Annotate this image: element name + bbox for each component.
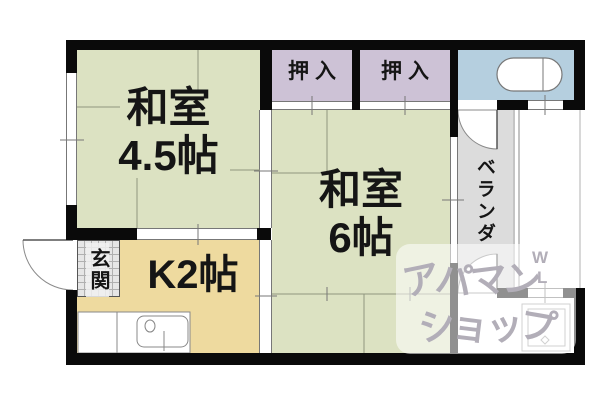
label-washitsu-6-line1: 和室 [272,166,450,214]
label-entrance: 玄関 [86,243,109,297]
label-closet-1: 押入 [272,60,352,84]
label-washitsu-4-5-line1: 和室 [77,84,260,132]
bathtub-icon [497,58,562,91]
label-washitsu-4-5-line2: 4.5帖 [77,132,260,180]
washer-pan-icon [522,304,570,351]
label-closet-2: 押入 [360,60,450,84]
sink-icon [137,316,188,351]
bath-door-arc [458,110,497,149]
wall-right-bath [574,40,585,110]
wall-washitsu45-closet1 [260,40,272,110]
wall-utility-top-a [497,288,528,298]
wall-washitsu45-bottom [77,228,137,240]
entrance-door-arc [23,240,73,290]
label-washitsu-4-5: 和室 4.5帖 [77,84,260,181]
floor-plan: 和室 4.5帖 和室 6帖 K2帖 押入 押入 ベランダ 玄関 アパマン W L… [0,0,600,400]
wall-top [66,40,585,50]
label-kitchen: K2帖 [120,252,266,298]
wall-bottom [66,353,585,365]
utility-door-arc [458,254,497,293]
wall-bath-bottom-b [563,100,574,110]
veranda-railing [514,110,580,288]
wall-washitsu6-veranda-lower [450,263,458,365]
wall-bath-bottom-a [497,100,528,110]
wall-washitsu6-veranda-upper [450,110,458,137]
wall-left-upper [66,40,77,73]
label-veranda: ベランダ [473,146,495,256]
wall-closet-divider [352,50,360,110]
label-washitsu-6-line2: 6帖 [272,214,450,262]
wall-utility-top-b [563,288,574,298]
wall-closet2-bath [450,40,458,110]
label-washitsu-6: 和室 6帖 [272,166,450,263]
wall-left-mid [66,205,77,240]
wall-post-kitchen [257,228,271,240]
wall-right-utility [574,288,585,365]
